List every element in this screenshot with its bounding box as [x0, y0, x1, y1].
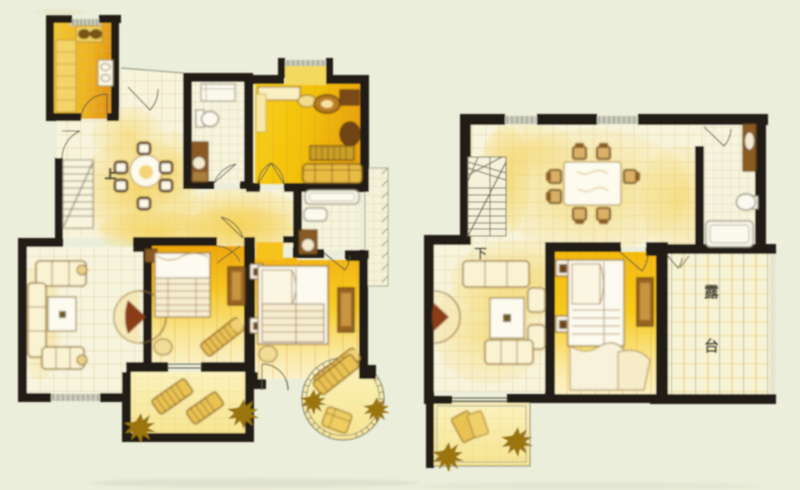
svg-text:下: 下 — [474, 246, 487, 261]
svg-text:台: 台 — [704, 337, 719, 355]
svg-text:露: 露 — [704, 283, 720, 301]
